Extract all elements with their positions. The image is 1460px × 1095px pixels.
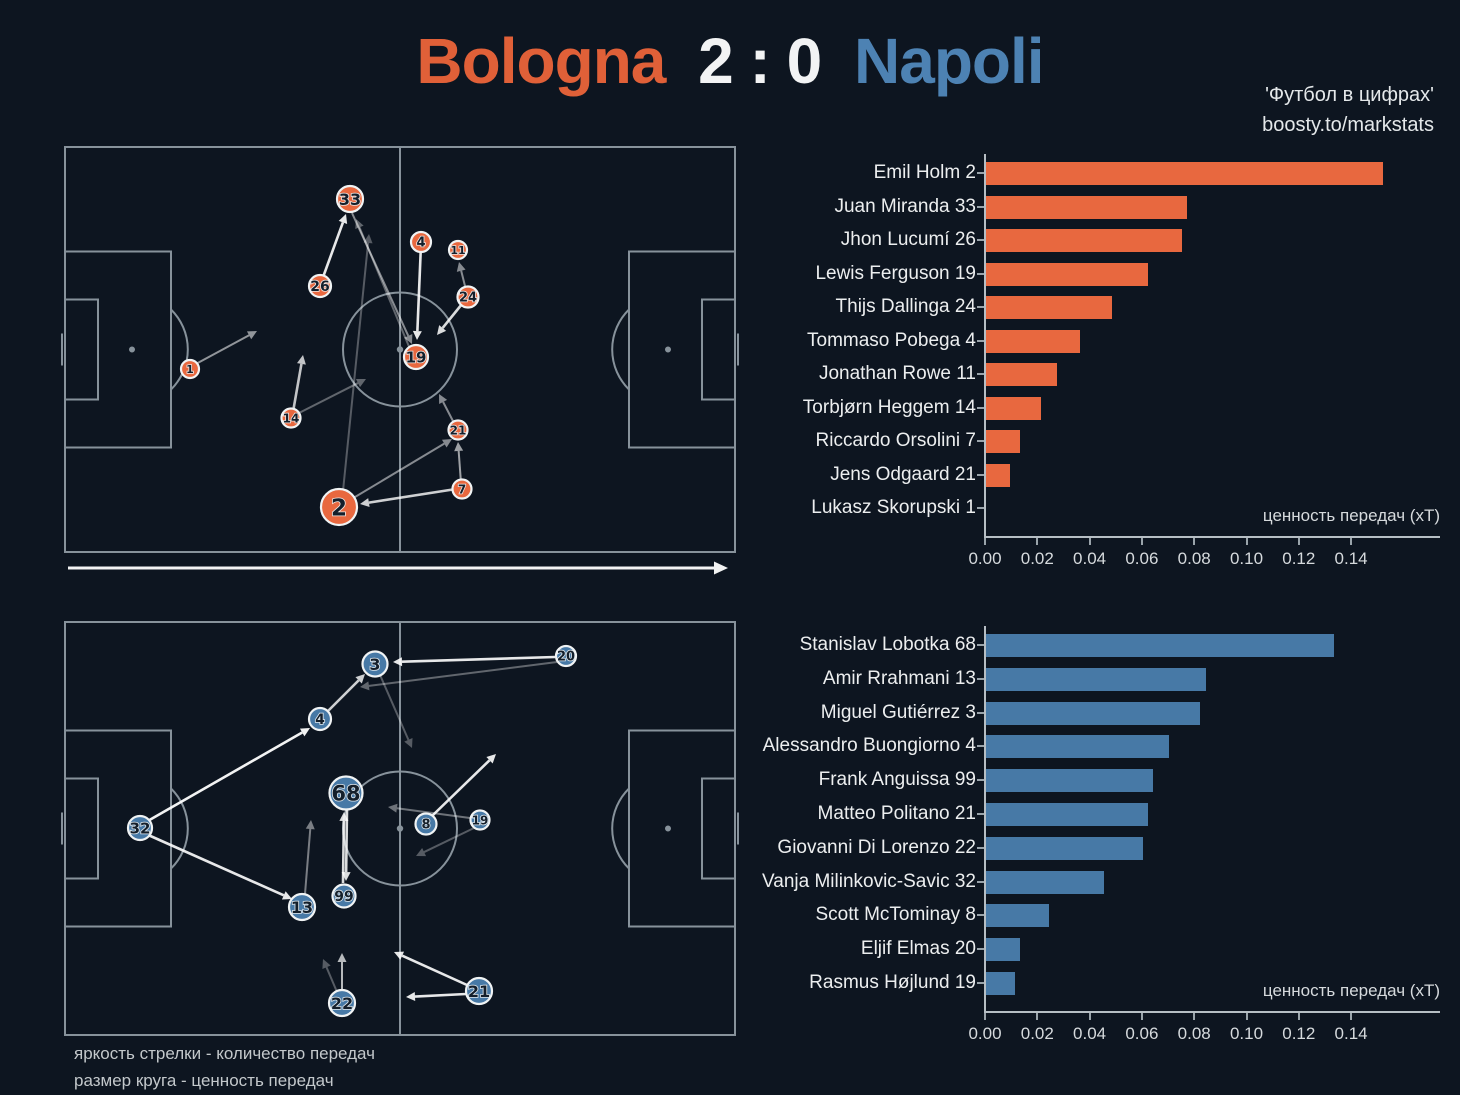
match-scoreline: Bologna 2 : 0 Napoli — [0, 24, 1460, 98]
watermark: 'Футбол в цифрах' boosty.to/markstats — [1262, 80, 1434, 140]
player-node: 20 — [556, 646, 576, 666]
value-bar — [986, 363, 1057, 386]
pass-arrow — [415, 994, 466, 997]
value-bar — [986, 162, 1383, 185]
player-label: Amir Rrahmani 13 — [740, 667, 976, 691]
x-axis-line — [984, 1011, 1440, 1013]
penalty-box-left — [65, 252, 171, 448]
pass-arrow-head — [388, 804, 398, 813]
player-node: 32 — [128, 816, 152, 840]
y-tick — [977, 306, 984, 308]
penalty-box-right — [629, 252, 735, 448]
player-number: 21 — [468, 982, 490, 1001]
player-label: Stanislav Lobotka 68 — [740, 633, 976, 657]
player-label: Torbjørn Heggem 14 — [740, 396, 976, 420]
y-tick — [977, 644, 984, 646]
player-node: 19 — [471, 811, 490, 830]
player-label: Matteo Politano 21 — [740, 802, 976, 826]
match-infographic: Bologna 2 : 0 Napoli 'Футбол в цифрах' b… — [0, 0, 1460, 1095]
y-tick — [977, 779, 984, 781]
pitch-napoli-pass-network: 3204683281913992221 — [60, 618, 740, 1040]
value-bar — [986, 464, 1010, 487]
player-node: 7 — [453, 480, 472, 499]
player-number: 32 — [130, 819, 151, 837]
x-axis-line — [984, 536, 1440, 538]
value-bar — [986, 330, 1080, 353]
player-node: 11 — [449, 241, 467, 259]
pass-arrow — [146, 732, 302, 822]
legend: яркость стрелки - количество передач раз… — [74, 1040, 375, 1094]
player-node: 3 — [363, 652, 388, 677]
player-node: 4 — [411, 232, 431, 252]
penalty-box-right — [629, 731, 735, 927]
player-number: 99 — [334, 889, 353, 905]
value-bar — [986, 430, 1020, 453]
y-tick — [977, 881, 984, 883]
y-tick — [977, 914, 984, 916]
player-number: 4 — [416, 236, 425, 251]
penalty-spot-right — [666, 348, 670, 352]
value-bar — [986, 735, 1169, 758]
value-bar — [986, 634, 1334, 657]
player-node: 13 — [289, 894, 315, 920]
pass-arrow — [417, 244, 421, 331]
center-spot — [398, 826, 402, 830]
x-tick — [1193, 538, 1195, 545]
x-tick — [1246, 538, 1248, 545]
y-tick — [977, 507, 984, 509]
pass-arrow-head — [714, 562, 728, 575]
player-node: 68 — [330, 777, 363, 810]
player-label: Miguel Gutiérrez 3 — [740, 701, 976, 725]
player-node: 26 — [309, 275, 331, 297]
y-tick — [977, 712, 984, 714]
value-bar — [986, 871, 1104, 894]
player-label: Tommaso Pobega 4 — [740, 329, 976, 353]
player-number: 4 — [315, 712, 325, 728]
player-label: Jhon Lucumí 26 — [740, 228, 976, 252]
x-tick — [1036, 538, 1038, 545]
x-tick — [1141, 1013, 1143, 1020]
x-tick-label: 0.14 — [1319, 1024, 1383, 1044]
pass-arrow — [350, 444, 444, 500]
pass-arrow — [326, 680, 359, 713]
player-node: 22 — [329, 990, 355, 1016]
y-tick — [977, 440, 984, 442]
y-tick — [977, 813, 984, 815]
watermark-line2: boosty.to/markstats — [1262, 110, 1434, 140]
goal-box-left — [65, 779, 98, 879]
pitch-markings — [62, 147, 738, 552]
pass-arrow — [297, 383, 358, 414]
away-team-name: Napoli — [854, 25, 1044, 97]
player-number: 14 — [283, 411, 300, 425]
player-label: Giovanni Di Lorenzo 22 — [740, 836, 976, 860]
player-label: Alessandro Buongiorno 4 — [740, 734, 976, 758]
value-bar — [986, 702, 1200, 725]
goal-box-right — [702, 779, 735, 879]
player-label: Riccardo Orsolini 7 — [740, 429, 976, 453]
pass-arrow-head — [360, 498, 370, 507]
player-number: 21 — [450, 423, 467, 437]
player-number: 24 — [459, 291, 477, 306]
pass-arrow — [146, 834, 284, 895]
pass-arrow — [359, 227, 410, 349]
y-tick — [977, 678, 984, 680]
player-label: Jonathan Rowe 11 — [740, 362, 976, 386]
x-tick — [984, 538, 986, 545]
player-node: 4 — [309, 708, 331, 730]
x-tick — [1089, 538, 1091, 545]
goal-box-right — [702, 300, 735, 400]
pass-arrow-head — [297, 355, 306, 365]
pass-arrow-head — [413, 331, 422, 340]
pass-arrow — [343, 821, 344, 883]
home-team-name: Bologna — [416, 25, 665, 97]
player-label: Rasmus Højlund 19 — [740, 971, 976, 995]
player-node: 2 — [321, 489, 357, 525]
player-label: Jens Odgaard 21 — [740, 463, 976, 487]
penalty-arc-right — [612, 310, 629, 390]
player-node: 99 — [333, 885, 356, 908]
y-tick — [977, 273, 984, 275]
value-bar — [986, 296, 1112, 319]
pass-arrow-head — [406, 992, 415, 1001]
pass-arrow — [305, 829, 310, 894]
pass-arrow — [194, 335, 249, 365]
penalty-spot-left — [130, 348, 134, 352]
player-number: 11 — [450, 244, 465, 257]
pass-arrow — [322, 222, 343, 280]
x-tick — [1193, 1013, 1195, 1020]
value-bar — [986, 904, 1049, 927]
watermark-line1: 'Футбол в цифрах' — [1262, 80, 1434, 110]
pass-arrow-head — [306, 820, 315, 829]
goal-box-left — [65, 300, 98, 400]
player-node: 21 — [466, 978, 492, 1004]
player-number: 19 — [406, 348, 427, 366]
x-axis-label: ценность передач (xT) — [1110, 981, 1440, 1001]
pitch-markings — [62, 622, 738, 1035]
player-node: 24 — [458, 287, 479, 308]
pass-arrow — [293, 364, 301, 412]
penalty-box-left — [65, 731, 171, 927]
player-number: 22 — [331, 994, 353, 1013]
x-tick-label: 0.14 — [1319, 549, 1383, 569]
y-tick — [977, 172, 984, 174]
value-bar — [986, 803, 1148, 826]
player-number: 68 — [331, 782, 360, 806]
pass-arrow — [369, 489, 456, 503]
player-number: 7 — [458, 482, 466, 496]
value-bar — [986, 837, 1143, 860]
player-label: Eljif Elmas 20 — [740, 937, 976, 961]
player-number: 1 — [186, 363, 194, 376]
player-label: Juan Miranda 33 — [740, 195, 976, 219]
player-label: Scott McTominay 8 — [740, 903, 976, 927]
value-bar — [986, 668, 1206, 691]
x-axis-label: ценность передач (xT) — [1110, 506, 1440, 526]
y-tick — [977, 847, 984, 849]
pass-arrow — [369, 662, 557, 686]
center-spot — [398, 347, 402, 351]
value-bar — [986, 263, 1148, 286]
pass-arrow — [327, 967, 337, 992]
pass-arrow-head — [454, 442, 463, 451]
y-tick — [977, 239, 984, 241]
x-tick — [1246, 1013, 1248, 1020]
match-score: 2 : 0 — [698, 25, 821, 97]
x-tick — [1350, 538, 1352, 545]
value-bar — [986, 769, 1153, 792]
pitch-bologna-pass-network: 334112624191142172 — [60, 142, 740, 578]
pass-arrow — [459, 451, 461, 483]
y-tick — [977, 948, 984, 950]
value-bar — [986, 196, 1187, 219]
value-bar — [986, 972, 1015, 995]
player-label: Lukasz Skorupski 1 — [740, 496, 976, 520]
player-node: 1 — [181, 360, 199, 378]
x-tick — [1089, 1013, 1091, 1020]
x-tick — [1036, 1013, 1038, 1020]
player-label: Emil Holm 2 — [740, 161, 976, 185]
player-label: Lewis Ferguson 19 — [740, 262, 976, 286]
legend-line2: размер круга - ценность передач — [74, 1067, 375, 1094]
player-number: 20 — [557, 650, 575, 665]
player-number: 2 — [331, 495, 347, 521]
x-tick — [1298, 1013, 1300, 1020]
y-tick — [977, 474, 984, 476]
x-tick — [1141, 538, 1143, 545]
player-label: Frank Anguissa 99 — [740, 768, 976, 792]
player-node: 19 — [404, 345, 428, 369]
player-node: 33 — [337, 186, 363, 212]
value-bar — [986, 229, 1182, 252]
pass-arrow — [402, 657, 555, 662]
pass-arrow-head — [338, 953, 347, 962]
pass-arrow-head — [393, 657, 402, 666]
xt-bar-chart-bologna: Emil Holm 2Juan Miranda 33Jhon Lucumí 26… — [740, 150, 1460, 590]
player-number: 8 — [421, 818, 430, 833]
pass-arrow — [443, 402, 454, 423]
value-bar — [986, 397, 1041, 420]
player-node: 14 — [282, 409, 301, 428]
x-tick — [984, 1013, 986, 1020]
player-number: 3 — [369, 655, 380, 674]
x-tick — [1350, 1013, 1352, 1020]
player-number: 26 — [310, 279, 329, 295]
y-tick — [977, 407, 984, 409]
penalty-spot-right — [666, 827, 670, 831]
player-label: Vanja Milinkovic-Savic 32 — [740, 870, 976, 894]
player-number: 19 — [472, 813, 489, 827]
player-number: 33 — [339, 190, 361, 209]
x-tick — [1298, 538, 1300, 545]
y-tick — [977, 206, 984, 208]
pass-arrow-head — [457, 262, 466, 272]
xt-bar-chart-napoli: Stanislav Lobotka 68Amir Rrahmani 13Migu… — [740, 622, 1460, 1062]
y-tick — [977, 340, 984, 342]
player-node: 8 — [416, 814, 437, 835]
y-tick — [977, 982, 984, 984]
penalty-arc-right — [612, 789, 629, 869]
value-bar — [986, 938, 1020, 961]
legend-line1: яркость стрелки - количество передач — [74, 1040, 375, 1067]
pass-arrow — [402, 956, 467, 985]
player-number: 13 — [291, 898, 313, 917]
y-tick — [977, 373, 984, 375]
player-node: 21 — [449, 421, 468, 440]
player-label: Thijs Dallinga 24 — [740, 295, 976, 319]
y-tick — [977, 745, 984, 747]
